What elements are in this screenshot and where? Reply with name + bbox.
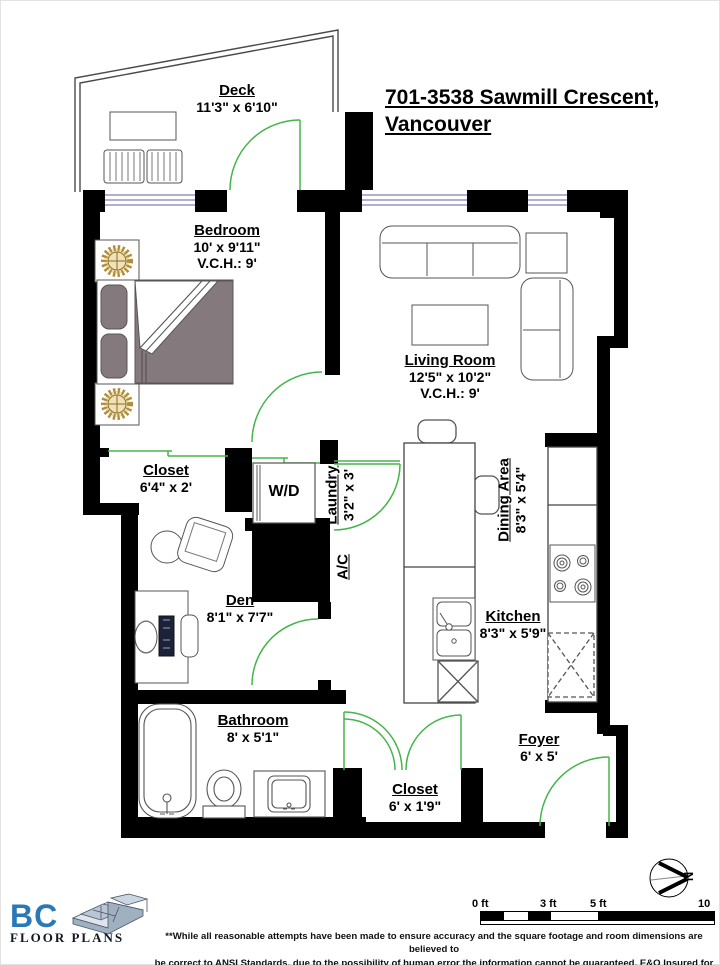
pillow xyxy=(101,285,127,329)
room-label-den: Den 8'1" x 7'7" xyxy=(207,592,274,625)
foyer-closet-door xyxy=(406,715,461,770)
bathtub xyxy=(139,704,196,818)
floor-plan-drawing xyxy=(0,0,720,965)
room-label-foyer-closet: Closet 6' x 1'9" xyxy=(389,781,441,814)
sofa xyxy=(380,226,520,278)
scale-tick-0ft: 0 ft xyxy=(472,898,489,910)
room-label-laundry: Laundry 3'2" x 3' xyxy=(324,465,357,524)
toilet xyxy=(203,770,245,818)
disclaimer-line1: **While all reasonable attempts have bee… xyxy=(150,930,718,957)
floor-plan-page: 701-3538 Sawmill Crescent, Vancouver Dec… xyxy=(0,0,720,965)
kitchen-counter-right xyxy=(548,447,597,702)
disclaimer-line2: be correct to ANSI Standards, due to the… xyxy=(150,957,718,965)
room-label-deck: Deck 11'3" x 6'10" xyxy=(196,82,277,115)
desk-chair xyxy=(135,621,157,653)
laundry-sliding-doors xyxy=(252,458,320,463)
sink xyxy=(433,598,475,660)
dishwasher xyxy=(438,661,478,702)
north-label: N xyxy=(681,872,696,881)
bedroom-door xyxy=(252,372,322,442)
armchair xyxy=(175,515,235,575)
fridge xyxy=(548,633,594,697)
page-title: 701-3538 Sawmill Crescent, Vancouver xyxy=(385,84,659,139)
washer-dryer-label: W/D xyxy=(268,483,299,501)
computer-monitor xyxy=(159,616,174,656)
room-label-closet: Closet 6'4" x 2' xyxy=(140,462,192,495)
loveseat xyxy=(521,278,573,380)
room-label-dining-area: Dining Area 8'3" x 5'4" xyxy=(496,458,529,542)
room-label-bedroom: Bedroom 10' x 9'11" V.C.H.: 9' xyxy=(193,222,260,271)
stool xyxy=(418,420,456,443)
stove xyxy=(550,545,595,602)
north-arrow: N xyxy=(648,856,700,900)
ac-label: A/C xyxy=(335,554,352,580)
room-label-living-room: Living Room 12'5" x 10'2" V.C.H.: 9' xyxy=(405,352,496,401)
den-door xyxy=(252,619,318,685)
disclaimer-text: **While all reasonable attempts have bee… xyxy=(150,930,718,965)
bathroom-door xyxy=(344,712,402,770)
bedroom-living-wall xyxy=(325,190,340,375)
room-label-bathroom: Bathroom 8' x 5'1" xyxy=(218,712,289,745)
logo-subtitle: FLOOR PLANS xyxy=(10,930,124,946)
scale-bar: 0 ft 3 ft 5 ft 10 ft xyxy=(468,898,718,925)
coffee-table xyxy=(412,305,488,345)
pillow xyxy=(101,334,127,378)
entry-door xyxy=(540,757,609,826)
closet-sliding-doors xyxy=(108,451,228,456)
address-line1: 701-3538 Sawmill Crescent, xyxy=(385,84,659,111)
round-table xyxy=(151,531,183,563)
den-side-chair xyxy=(181,615,198,657)
deck-furniture xyxy=(104,112,182,183)
chimney-block xyxy=(345,112,373,194)
side-table xyxy=(526,233,567,273)
bed xyxy=(97,280,233,384)
room-label-kitchen: Kitchen 8'3" x 5'9" xyxy=(480,608,547,641)
scale-bar-base xyxy=(480,921,715,925)
deck-door xyxy=(230,120,300,190)
lamp-icon xyxy=(104,391,130,417)
lamp-icon xyxy=(104,248,130,274)
room-label-foyer: Foyer 6' x 5' xyxy=(519,731,560,764)
scale-tick-3ft: 3 ft xyxy=(540,898,557,910)
kitchen-island xyxy=(404,420,499,703)
scale-bar-segments xyxy=(480,911,715,921)
vanity-sink xyxy=(254,771,325,817)
deck-table xyxy=(110,112,176,140)
scale-tick-5ft: 5 ft xyxy=(590,898,607,910)
address-line2: Vancouver xyxy=(385,111,659,138)
